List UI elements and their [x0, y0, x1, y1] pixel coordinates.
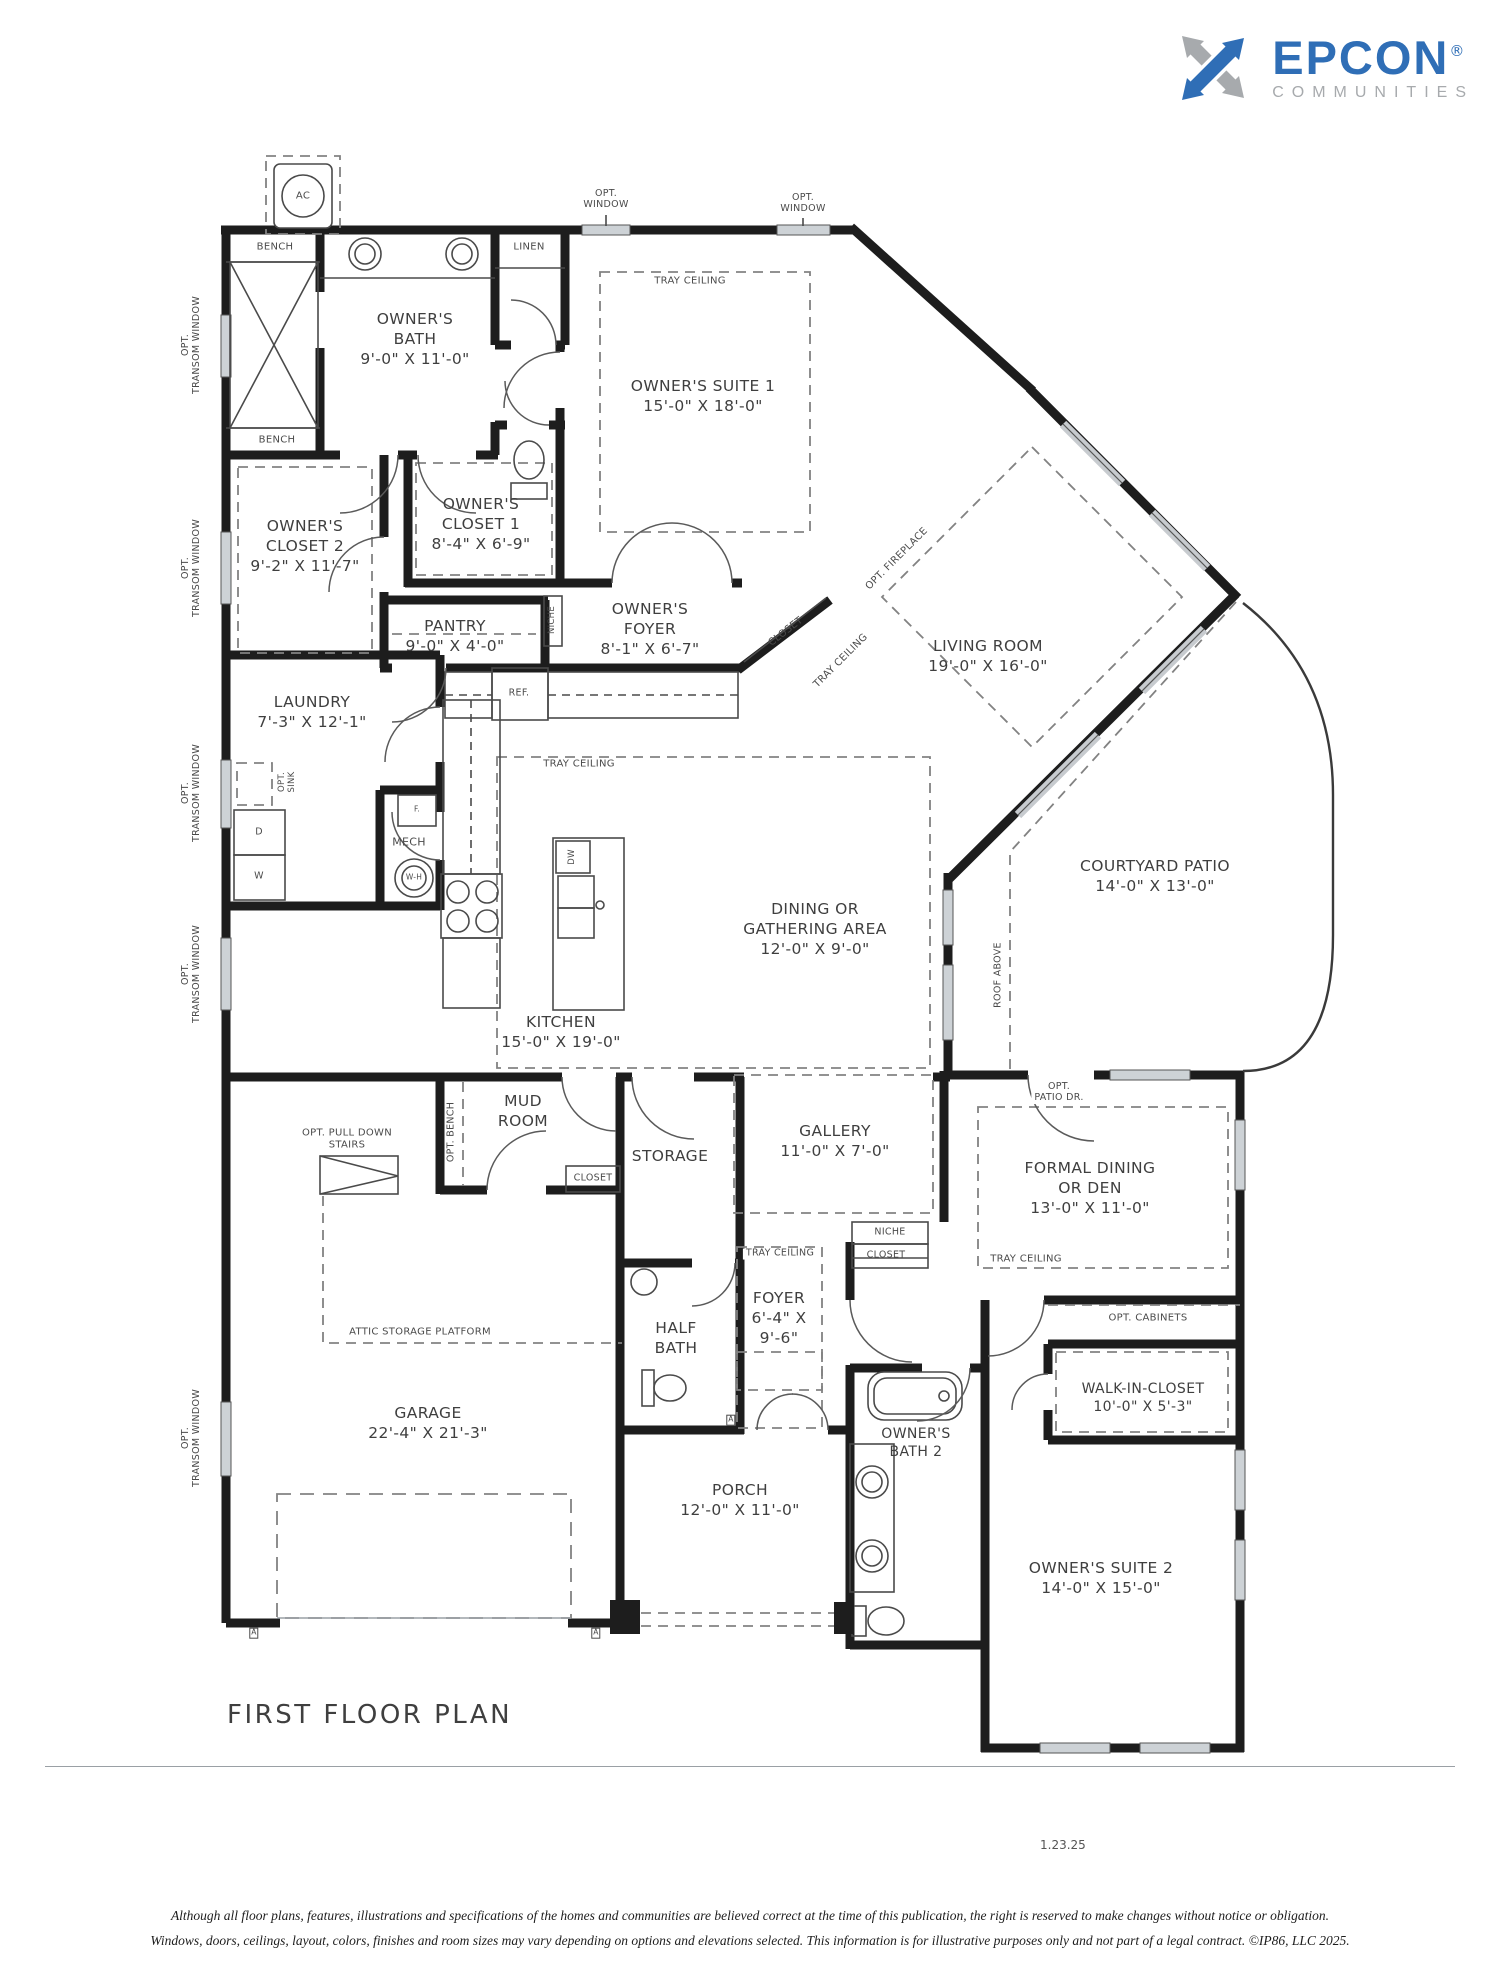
closet-label: CLOSET: [867, 1251, 906, 1262]
room-label-owners-bath: OWNER'S BATH 9'-0" X 11'-0": [360, 309, 469, 369]
room-name: LIVING ROOM: [928, 636, 1048, 656]
room-dims: 13'-0" X 11'-0": [1025, 1198, 1156, 1218]
room-label-porch: PORCH 12'-0" X 11'-0": [680, 1480, 800, 1520]
ac-label: AC: [296, 190, 310, 202]
room-dims: 7'-3" X 12'-1": [257, 712, 366, 732]
room-name: COURTYARD PATIO: [1080, 856, 1230, 876]
room-name: GARAGE: [368, 1403, 488, 1423]
room-dims: 12'-0" X 11'-0": [680, 1500, 800, 1520]
room-label-mud-room: MUD ROOM: [498, 1091, 548, 1131]
room-name: OWNER'S SUITE 1: [631, 376, 776, 396]
elevation-marker: A: [591, 1628, 600, 1639]
opt-bench-label: OPT. BENCH: [447, 1102, 458, 1162]
room-name: OWNER'S SUITE 2: [1029, 1558, 1174, 1578]
room-dims: 10'-0" X 5'-3": [1082, 1398, 1205, 1416]
room-name: LAUNDRY: [257, 692, 366, 712]
furnace-label: F.: [414, 806, 420, 815]
room-dims: 9'-0" X 4'-0": [405, 636, 504, 656]
room-label-owners-foyer: OWNER'S FOYER 8'-1" X 6'-7": [600, 599, 699, 659]
niche-label: NICHE: [874, 1228, 905, 1239]
room-name: OWNER'S CLOSET 2: [250, 516, 359, 556]
room-dims: 9'-0" X 11'-0": [360, 349, 469, 369]
room-dims: 22'-4" X 21'-3": [368, 1423, 488, 1443]
opt-transom-window-label: OPT. TRANSOM WINDOW: [181, 296, 203, 394]
room-name: STORAGE: [632, 1146, 709, 1166]
elevation-marker: A: [726, 1415, 735, 1426]
room-label-owners-closet-2: OWNER'S CLOSET 2 9'-2" X 11'-7": [250, 516, 359, 576]
floor-plan-drawing: [0, 0, 1500, 1972]
room-name: KITCHEN: [501, 1012, 621, 1032]
opt-sink-label: OPT. SINK: [278, 771, 298, 792]
room-dims: 12'-0" X 9'-0": [743, 939, 887, 959]
room-name: WALK-IN-CLOSET: [1082, 1380, 1205, 1398]
room-dims: 6'-4" X 9'-6": [751, 1308, 806, 1348]
room-name: DINING OR GATHERING AREA: [743, 899, 887, 939]
opt-transom-window-label: OPT. TRANSOM WINDOW: [181, 519, 203, 617]
patio-outline: [1243, 603, 1333, 1071]
room-name: MUD ROOM: [498, 1091, 548, 1131]
room-name: FORMAL DINING OR DEN: [1025, 1158, 1156, 1198]
room-name: OWNER'S CLOSET 1: [431, 494, 530, 534]
opt-transom-window-label: OPT. TRANSOM WINDOW: [181, 925, 203, 1023]
room-label-storage: STORAGE: [632, 1146, 709, 1166]
opt-window-label: OPT. WINDOW: [583, 189, 628, 211]
dishwasher-label: DW: [568, 849, 578, 865]
opt-window-label: OPT. WINDOW: [780, 193, 825, 215]
room-dims: 11'-0" X 7'-0": [780, 1141, 889, 1161]
dryer-label: D: [255, 828, 263, 839]
room-label-courtyard-patio: COURTYARD PATIO 14'-0" X 13'-0": [1080, 856, 1230, 896]
porch-posts: [610, 1600, 854, 1634]
room-dims: 14'-0" X 15'-0": [1029, 1578, 1174, 1598]
windows: [221, 225, 1245, 1753]
room-label-owners-closet-1: OWNER'S CLOSET 1 8'-4" X 6'-9": [431, 494, 530, 554]
room-label-foyer: FOYER 6'-4" X 9'-6": [751, 1288, 806, 1348]
room-label-half-bath: HALF BATH: [655, 1318, 698, 1358]
room-label-laundry: LAUNDRY 7'-3" X 12'-1": [257, 692, 366, 732]
registered-mark: ®: [1449, 42, 1464, 60]
water-heater-label: W-H: [406, 874, 422, 883]
bench-label: BENCH: [257, 241, 294, 253]
tray-ceiling-label: TRAY CEILING: [987, 1253, 1065, 1265]
niche-label: NICHE: [548, 606, 558, 634]
floor-plan-sheet: EPCON® COMMUNITIES: [0, 0, 1500, 1972]
brand-name: EPCON: [1272, 31, 1449, 84]
bench-label: BENCH: [259, 434, 296, 446]
tray-ceiling-label: TRAY CEILING: [743, 1249, 817, 1260]
room-dims: 15'-0" X 19'-0": [501, 1032, 621, 1052]
epcon-logo: EPCON® COMMUNITIES: [1168, 22, 1474, 114]
opt-pull-down-stairs-label: OPT. PULL DOWN STAIRS: [302, 1128, 392, 1151]
room-dims: 9'-2" X 11'-7": [250, 556, 359, 576]
room-label-garage: GARAGE 22'-4" X 21'-3": [368, 1403, 488, 1443]
elevation-marker: A: [249, 1628, 258, 1639]
room-label-formal-dining: FORMAL DINING OR DEN 13'-0" X 11'-0": [1025, 1158, 1156, 1218]
room-name: OWNER'S BATH: [360, 309, 469, 349]
opt-patio-door-label: OPT. PATIO DR.: [1031, 1082, 1086, 1104]
room-label-kitchen: KITCHEN 15'-0" X 19'-0": [501, 1012, 621, 1052]
room-label-owners-suite-2: OWNER'S SUITE 2 14'-0" X 15'-0": [1029, 1558, 1174, 1598]
washer-label: W: [254, 872, 264, 883]
room-name: GALLERY: [780, 1121, 889, 1141]
room-dims: 8'-1" X 6'-7": [600, 639, 699, 659]
room-name: FOYER: [751, 1288, 806, 1308]
opt-cabinets-label: OPT. CABINETS: [1106, 1312, 1191, 1324]
room-name: OWNER'S BATH 2: [881, 1425, 950, 1461]
brand-tagline: COMMUNITIES: [1272, 84, 1474, 102]
room-label-dining: DINING OR GATHERING AREA 12'-0" X 9'-0": [743, 899, 887, 959]
epcon-logo-icon: [1168, 22, 1258, 114]
room-name: PANTRY: [405, 616, 504, 636]
room-name: HALF BATH: [655, 1318, 698, 1358]
opt-transom-window-label: OPT. TRANSOM WINDOW: [181, 744, 203, 842]
tray-ceiling-label: TRAY CEILING: [540, 758, 618, 770]
room-name: PORCH: [680, 1480, 800, 1500]
room-name: OWNER'S FOYER: [600, 599, 699, 639]
opt-transom-window-label: OPT. TRANSOM WINDOW: [181, 1389, 203, 1487]
room-label-gallery: GALLERY 11'-0" X 7'-0": [780, 1121, 889, 1161]
roof-above-label: ROOF ABOVE: [994, 939, 1005, 1011]
room-dims: 8'-4" X 6'-9": [431, 534, 530, 554]
room-label-living-room: LIVING ROOM 19'-0" X 16'-0": [928, 636, 1048, 676]
disclaimer-line-1: Although all floor plans, features, illu…: [0, 1908, 1500, 1924]
footer-divider: [45, 1766, 1455, 1767]
room-label-owners-suite-1: OWNER'S SUITE 1 15'-0" X 18'-0": [631, 376, 776, 416]
plan-title: FIRST FLOOR PLAN: [227, 1700, 512, 1730]
ref-label: REF.: [509, 689, 530, 700]
room-dims: 19'-0" X 16'-0": [928, 656, 1048, 676]
linen-label: LINEN: [513, 241, 544, 253]
room-label-pantry: PANTRY 9'-0" X 4'-0": [405, 616, 504, 656]
room-dims: 15'-0" X 18'-0": [631, 396, 776, 416]
disclaimer-line-2: Windows, doors, ceilings, layout, colors…: [0, 1933, 1500, 1949]
tray-ceiling-label: TRAY CEILING: [651, 275, 729, 287]
room-label-owners-bath-2: OWNER'S BATH 2: [881, 1425, 950, 1461]
room-label-walk-in-closet: WALK-IN-CLOSET 10'-0" X 5'-3": [1082, 1380, 1205, 1416]
revision-date: 1.23.25: [1040, 1838, 1086, 1852]
mech-label: MECH: [392, 837, 426, 850]
room-dims: 14'-0" X 13'-0": [1080, 876, 1230, 896]
closet-label: CLOSET: [574, 1174, 613, 1185]
attic-storage-platform-label: ATTIC STORAGE PLATFORM: [346, 1326, 494, 1338]
